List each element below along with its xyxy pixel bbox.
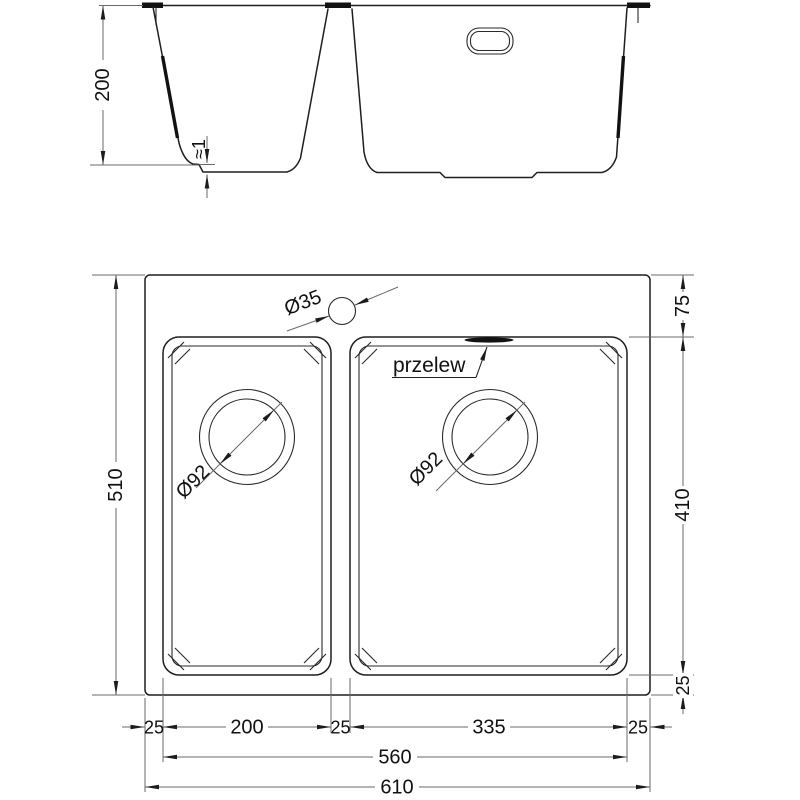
section-rim-cap-divider	[325, 3, 351, 9]
dim-faucet-label: Ø35	[281, 286, 324, 320]
dim-left-drain: Ø92	[172, 402, 282, 503]
dim-overall-width-label: 610	[380, 777, 413, 799]
sink-outline	[145, 275, 650, 695]
section-overflow-inner	[471, 32, 510, 51]
dim-75-label: 75	[672, 295, 694, 317]
section-clip-right	[618, 56, 624, 138]
right-bowl-corner-bl	[355, 648, 377, 670]
right-bowl-outer	[350, 337, 627, 675]
left-bowl-corner-br	[304, 648, 326, 670]
dim-left-edge-label: 25	[144, 718, 164, 738]
dim-510-label: 510	[105, 468, 127, 501]
dim-middle-gap-label: 25	[330, 718, 350, 738]
left-bowl-inner	[172, 346, 322, 666]
sink-technical-drawing: 200 ≈1	[0, 0, 800, 800]
right-bowl-corner-tr	[600, 342, 622, 364]
right-bowl	[350, 337, 627, 675]
dim-section-bottom-step: ≈1	[189, 136, 215, 198]
section-view: 200 ≈1	[90, 3, 650, 199]
plan-view: Ø35 Ø92 Ø92 przelew 510	[92, 275, 694, 799]
overflow-label: przelew	[393, 354, 466, 377]
left-bowl-corner-tl	[168, 342, 190, 364]
dim-depth-label: 200	[92, 68, 114, 101]
dim-bottom-row2: 560	[163, 747, 627, 769]
dim-right-edge-label: 25	[628, 718, 648, 738]
section-clip-left	[163, 56, 178, 138]
faucet-hole	[329, 298, 356, 325]
overflow-callout: przelew	[392, 347, 487, 378]
right-bowl-corner-tl	[355, 342, 377, 364]
dim-bottom-step-label: ≈1	[189, 139, 209, 159]
left-bowl	[163, 337, 331, 675]
section-large-bowl-profile	[352, 8, 627, 178]
dim-left-bowl-width-label: 200	[230, 717, 263, 739]
dim-right-drain-label: Ø92	[405, 448, 447, 490]
dim-section-depth: 200	[90, 6, 198, 166]
overflow-slot-mark	[465, 337, 514, 342]
dim-410-label: 410	[672, 488, 694, 521]
right-bowl-corner-br	[600, 648, 622, 670]
dim-bottom-row3: 610	[145, 777, 650, 799]
dim-overall-height: 510	[92, 275, 145, 695]
dim-left-drain-label: Ø92	[172, 461, 214, 503]
left-bowl-outer	[163, 337, 331, 675]
dim-right-bowl-width-label: 335	[472, 717, 505, 739]
right-bowl-inner	[359, 346, 618, 666]
dim-25-right-label: 25	[673, 675, 693, 695]
dim-bottom-row1: 25 200 25 335 25	[122, 717, 672, 739]
dim-bowls-span-label: 560	[378, 747, 411, 769]
left-bowl-corner-bl	[168, 648, 190, 670]
dim-right-chain: 75 410 25	[629, 275, 694, 714]
section-small-bowl-profile	[153, 7, 328, 172]
left-bowl-corner-tr	[304, 342, 326, 364]
overflow-leader	[476, 347, 487, 378]
drawing-canvas: 200 ≈1	[0, 0, 800, 800]
